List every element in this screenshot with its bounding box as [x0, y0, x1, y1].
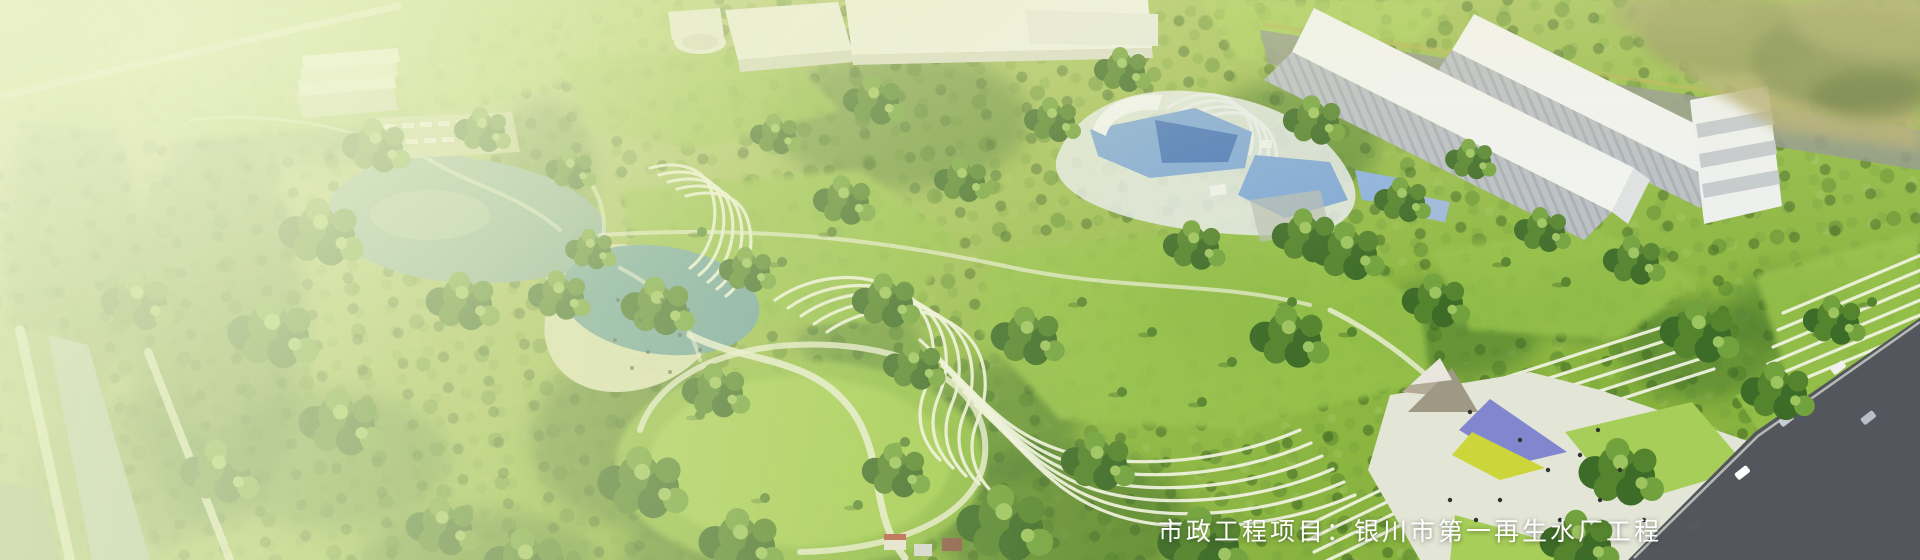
aerial-render [0, 0, 1920, 560]
caption-text: 市政工程项目：银川市第一再生水厂工程 [1158, 512, 1662, 548]
hero-banner: 市政工程项目：银川市第一再生水厂工程 [0, 0, 1920, 560]
office-building [296, 48, 400, 118]
factory-buildings-top [668, 0, 1158, 72]
lake-highlight [370, 190, 490, 240]
